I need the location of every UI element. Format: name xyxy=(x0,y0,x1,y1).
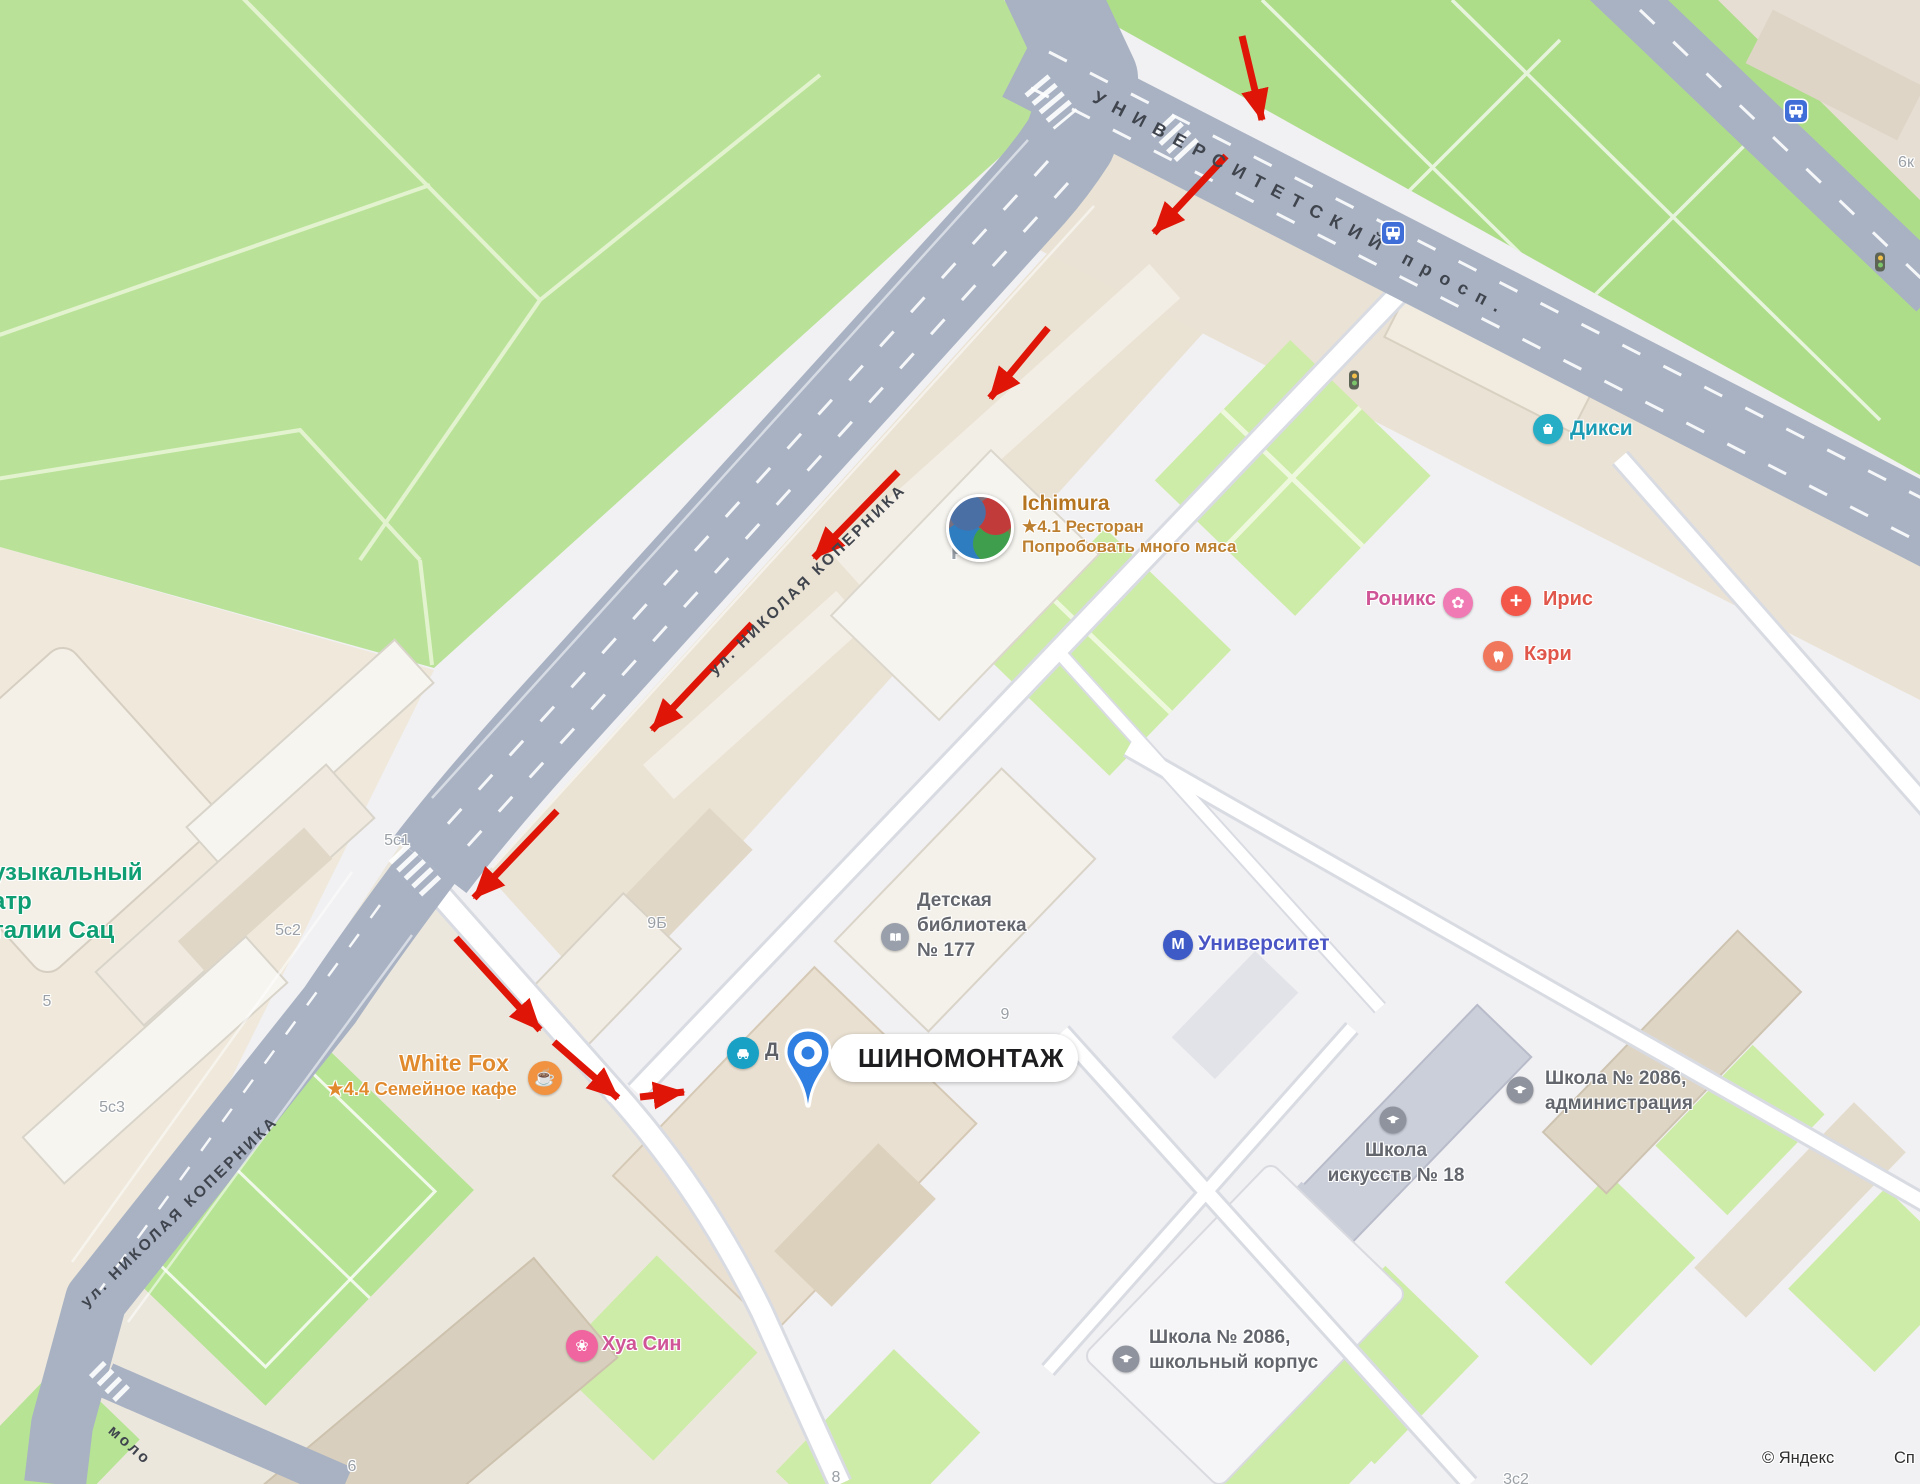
poi-theater-label[interactable]: узыкальный атр талии Сац xyxy=(0,858,143,945)
library-label[interactable]: Детская библиотека № 177 xyxy=(917,888,1027,963)
shinomontazh-bubble[interactable]: ШИНОМОНТАЖ xyxy=(830,1034,1078,1082)
library-book-icon[interactable] xyxy=(881,923,909,951)
building-number: 3с2 xyxy=(1503,1471,1529,1484)
attribution-partial[interactable]: Сп xyxy=(1894,1449,1915,1468)
dental-tooth-icon[interactable] xyxy=(1483,641,1513,671)
school-building-label[interactable]: Школа № 2086,школьный корпус xyxy=(1149,1325,1318,1375)
bus-glyph xyxy=(1785,100,1807,122)
car-glyph xyxy=(733,1043,753,1063)
white-fox-rating: ★4.4 Семейное кафе xyxy=(327,1078,517,1100)
building-number: 8 xyxy=(832,1469,841,1484)
medical-cross-icon[interactable]: + xyxy=(1501,586,1531,616)
graduation-cap-glyph xyxy=(1511,1081,1530,1100)
building-number: 9Б xyxy=(647,915,666,933)
traffic-light-icon xyxy=(1349,371,1359,390)
building-number: 5 xyxy=(43,993,52,1011)
tooth-glyph xyxy=(1491,648,1506,665)
restaurant-flower-icon[interactable]: ❀ xyxy=(566,1330,598,1362)
traffic-light-icon xyxy=(1875,253,1885,272)
graduation-cap-glyph xyxy=(1384,1111,1403,1130)
car-service-label-partial: Д xyxy=(765,1040,779,1062)
metro-name[interactable]: Университет xyxy=(1198,932,1330,956)
school-admin-label[interactable]: Школа № 2086,администрация xyxy=(1545,1066,1693,1116)
ichimura-tagline: Попробовать много мяса xyxy=(1022,537,1237,557)
cafe-cup-icon[interactable]: ☕ xyxy=(528,1061,562,1095)
graduation-cap-glyph xyxy=(1117,1350,1136,1369)
bus-glyph xyxy=(1382,222,1404,244)
school-cap-icon xyxy=(1380,1107,1407,1134)
ichimura-rating: ★4.1 Ресторан xyxy=(1022,517,1144,537)
basket-glyph xyxy=(1539,420,1557,438)
building-number: 5с2 xyxy=(275,922,301,940)
map-base-layer xyxy=(0,0,1920,1484)
beauty-flower-icon[interactable]: ✿ xyxy=(1443,588,1473,618)
school-cap-icon xyxy=(1507,1077,1534,1104)
building-number: 6 xyxy=(348,1458,357,1476)
white-fox-name[interactable]: White Fox xyxy=(399,1050,509,1077)
building-number: 5с3 xyxy=(99,1099,125,1117)
roniks-name[interactable]: Роникс xyxy=(1340,588,1436,611)
hua-sin-name[interactable]: Хуа Син xyxy=(602,1333,681,1356)
school-cap-icon xyxy=(1113,1346,1140,1373)
school-arts-label[interactable]: Школаискусств № 18 xyxy=(1296,1138,1496,1188)
store-basket-icon[interactable] xyxy=(1533,414,1563,444)
shinomontazh-label: ШИНОМОНТАЖ xyxy=(844,1043,1064,1074)
car-service-icon[interactable] xyxy=(727,1037,759,1069)
building-number: 5с1 xyxy=(384,832,410,850)
map-canvas[interactable]: УНИВЕРСИТЕТСКИЙ просп. ул. НИКОЛАЯ КОПЕР… xyxy=(0,0,1920,1484)
building-number: 9 xyxy=(1001,1006,1010,1024)
keri-name[interactable]: Кэри xyxy=(1524,643,1572,666)
attribution-copyright[interactable]: © Яндекс xyxy=(1762,1449,1834,1468)
bus-stop-icon[interactable] xyxy=(1785,100,1807,122)
ichimura-photo-avatar[interactable] xyxy=(946,494,1014,562)
iris-name[interactable]: Ирис xyxy=(1543,588,1593,611)
book-glyph xyxy=(887,929,904,946)
destination-pin-icon[interactable] xyxy=(779,1026,837,1114)
diksi-name[interactable]: Дикси xyxy=(1570,417,1633,441)
ichimura-name[interactable]: Ichimura xyxy=(1022,492,1110,516)
bus-stop-icon[interactable] xyxy=(1382,222,1404,244)
metro-icon[interactable]: М xyxy=(1163,930,1193,960)
building-number: 6к xyxy=(1898,154,1914,172)
